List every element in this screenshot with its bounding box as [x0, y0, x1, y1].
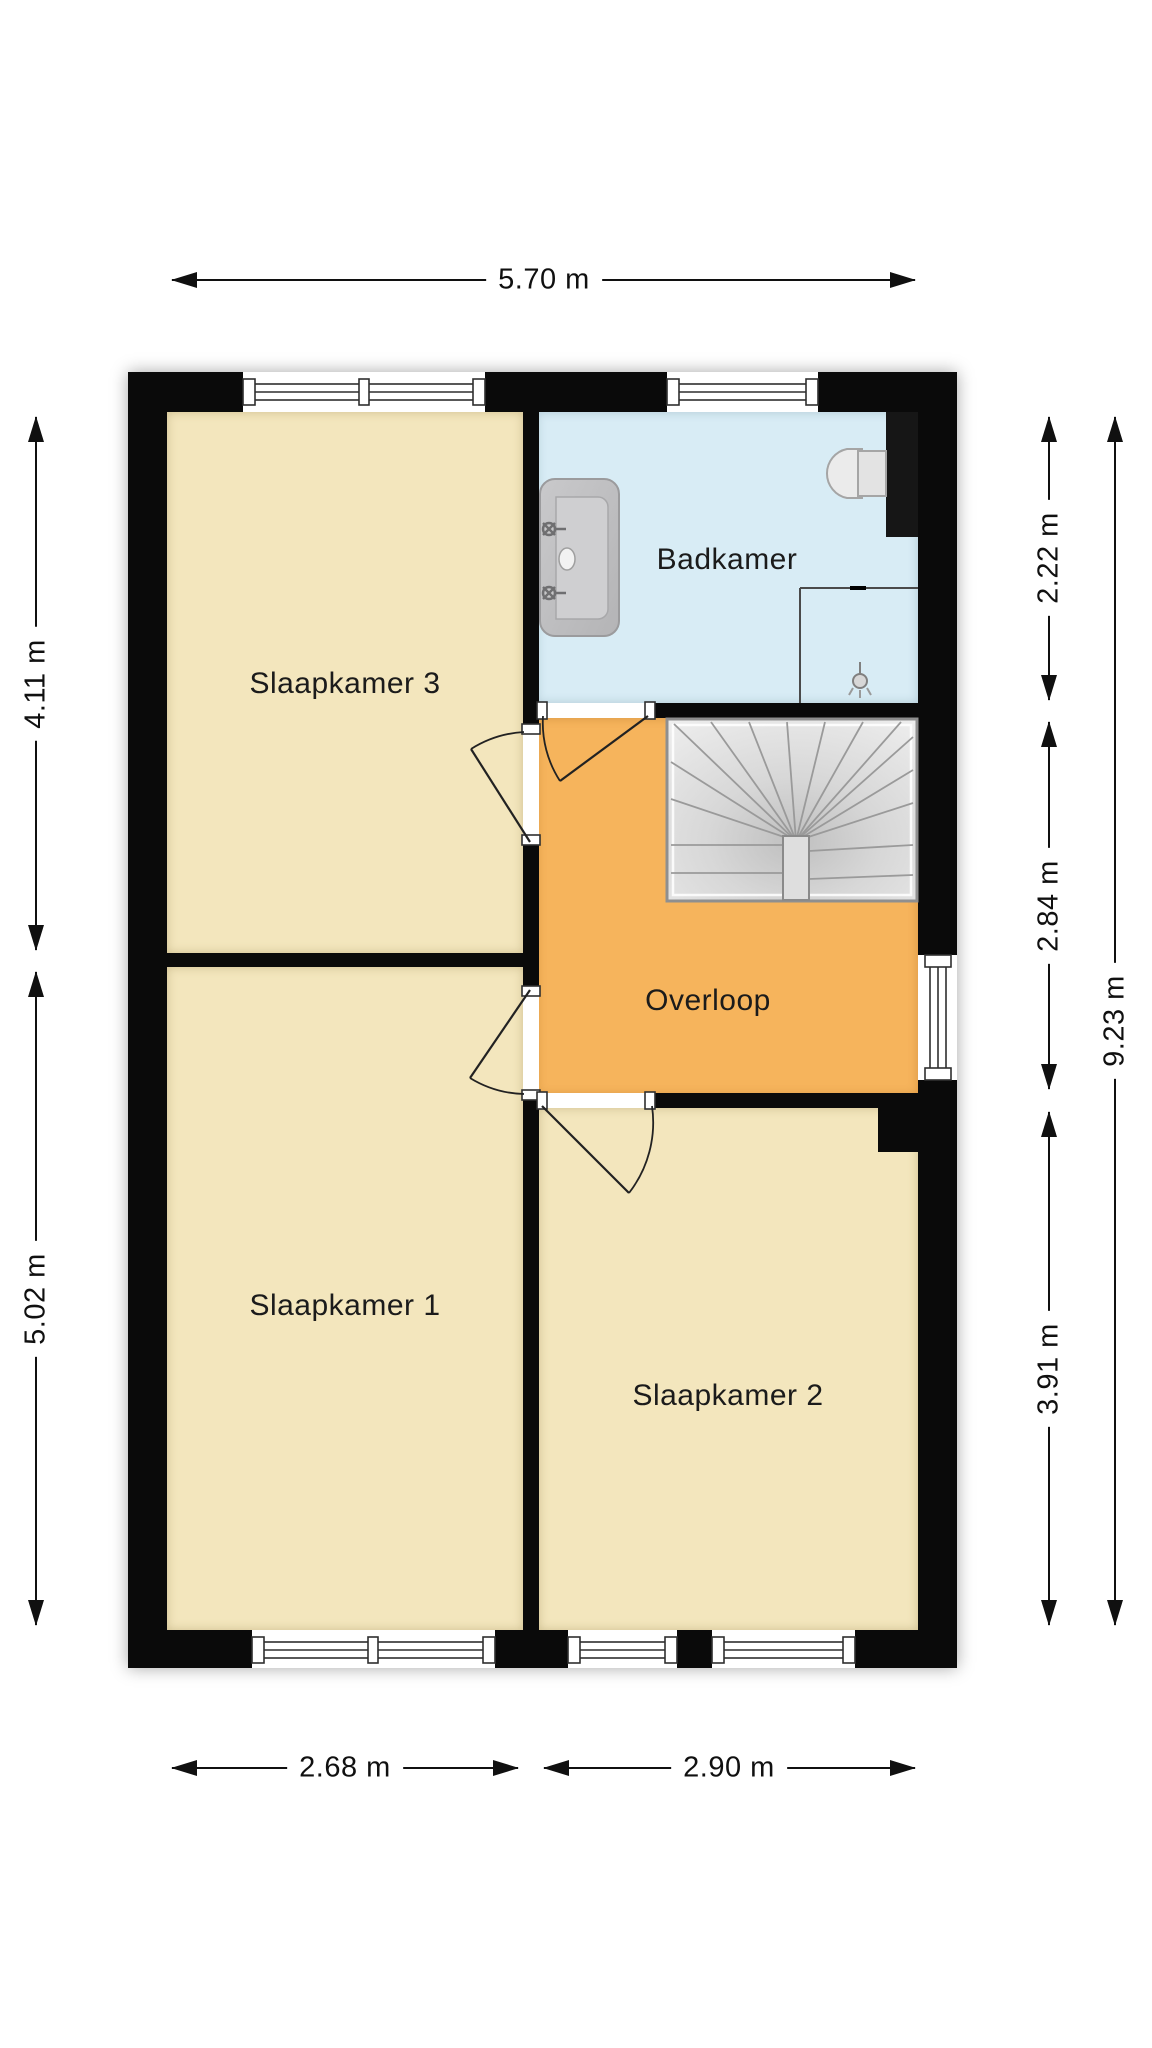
room-label-badkamer: Badkamer	[657, 543, 798, 577]
dim-label-bottom-bedroom1: 2.68 m	[287, 1752, 403, 1785]
room-label-slaapkamer-1: Slaapkamer 1	[249, 1289, 440, 1323]
dim-label-left-bedroom1: 5.02 m	[20, 1241, 53, 1357]
dim-label-right-landing: 2.84 m	[1033, 848, 1066, 964]
wall-landing-bedroom2	[523, 1093, 918, 1108]
dim-label-bottom-bedroom2: 2.90 m	[671, 1752, 787, 1785]
wall-interior-spine	[523, 412, 539, 1630]
room-slaapkamer-2	[539, 1108, 918, 1630]
wall-pier-under-window	[878, 1108, 918, 1152]
room-label-overloop: Overloop	[645, 984, 771, 1018]
dim-label-right-bedroom2: 3.91 m	[1033, 1311, 1066, 1427]
wall-exterior-right	[918, 372, 957, 1668]
duct-shaft	[886, 412, 918, 537]
dim-label-top-width: 5.70 m	[486, 264, 602, 297]
dim-label-right-total: 9.23 m	[1099, 963, 1132, 1079]
dim-label-left-bedroom3: 4.11 m	[20, 627, 53, 741]
wall-exterior-bottom	[128, 1630, 957, 1668]
wall-exterior-top	[128, 372, 957, 412]
room-label-slaapkamer-2: Slaapkamer 2	[632, 1379, 823, 1413]
wall-bathroom-landing	[523, 703, 918, 718]
wall-bedroom3-bedroom1	[167, 953, 523, 967]
room-overloop	[537, 718, 918, 1095]
dim-label-right-bathroom: 2.22 m	[1033, 500, 1066, 616]
floor-plan: Slaapkamer 3 Badkamer Overloop Slaapkame…	[0, 0, 1152, 2048]
room-label-slaapkamer-3: Slaapkamer 3	[249, 667, 440, 701]
wall-exterior-left	[128, 372, 167, 1668]
